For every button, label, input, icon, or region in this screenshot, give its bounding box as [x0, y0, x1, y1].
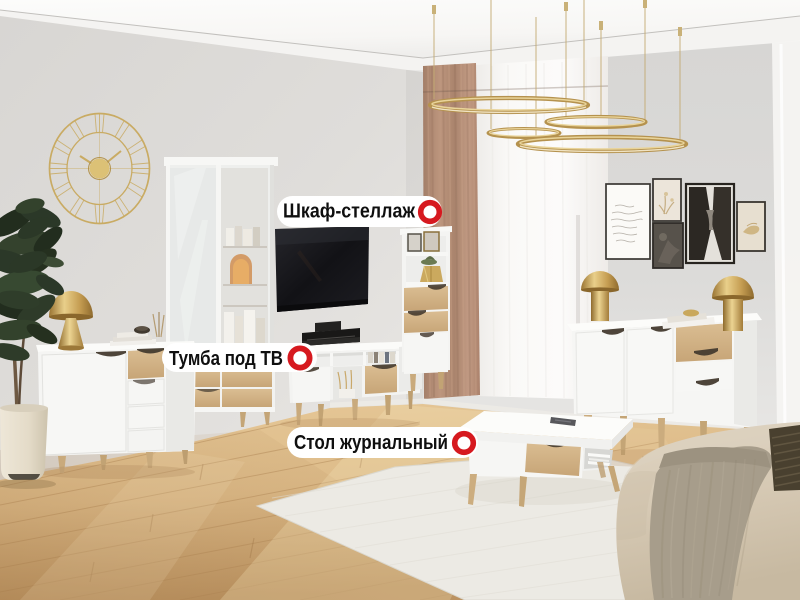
svg-text:Стол журнальный: Стол журнальный [294, 432, 448, 454]
svg-text:Тумба под ТВ: Тумба под ТВ [169, 348, 283, 370]
svg-text:Шкаф-стеллаж: Шкаф-стеллаж [283, 201, 416, 223]
